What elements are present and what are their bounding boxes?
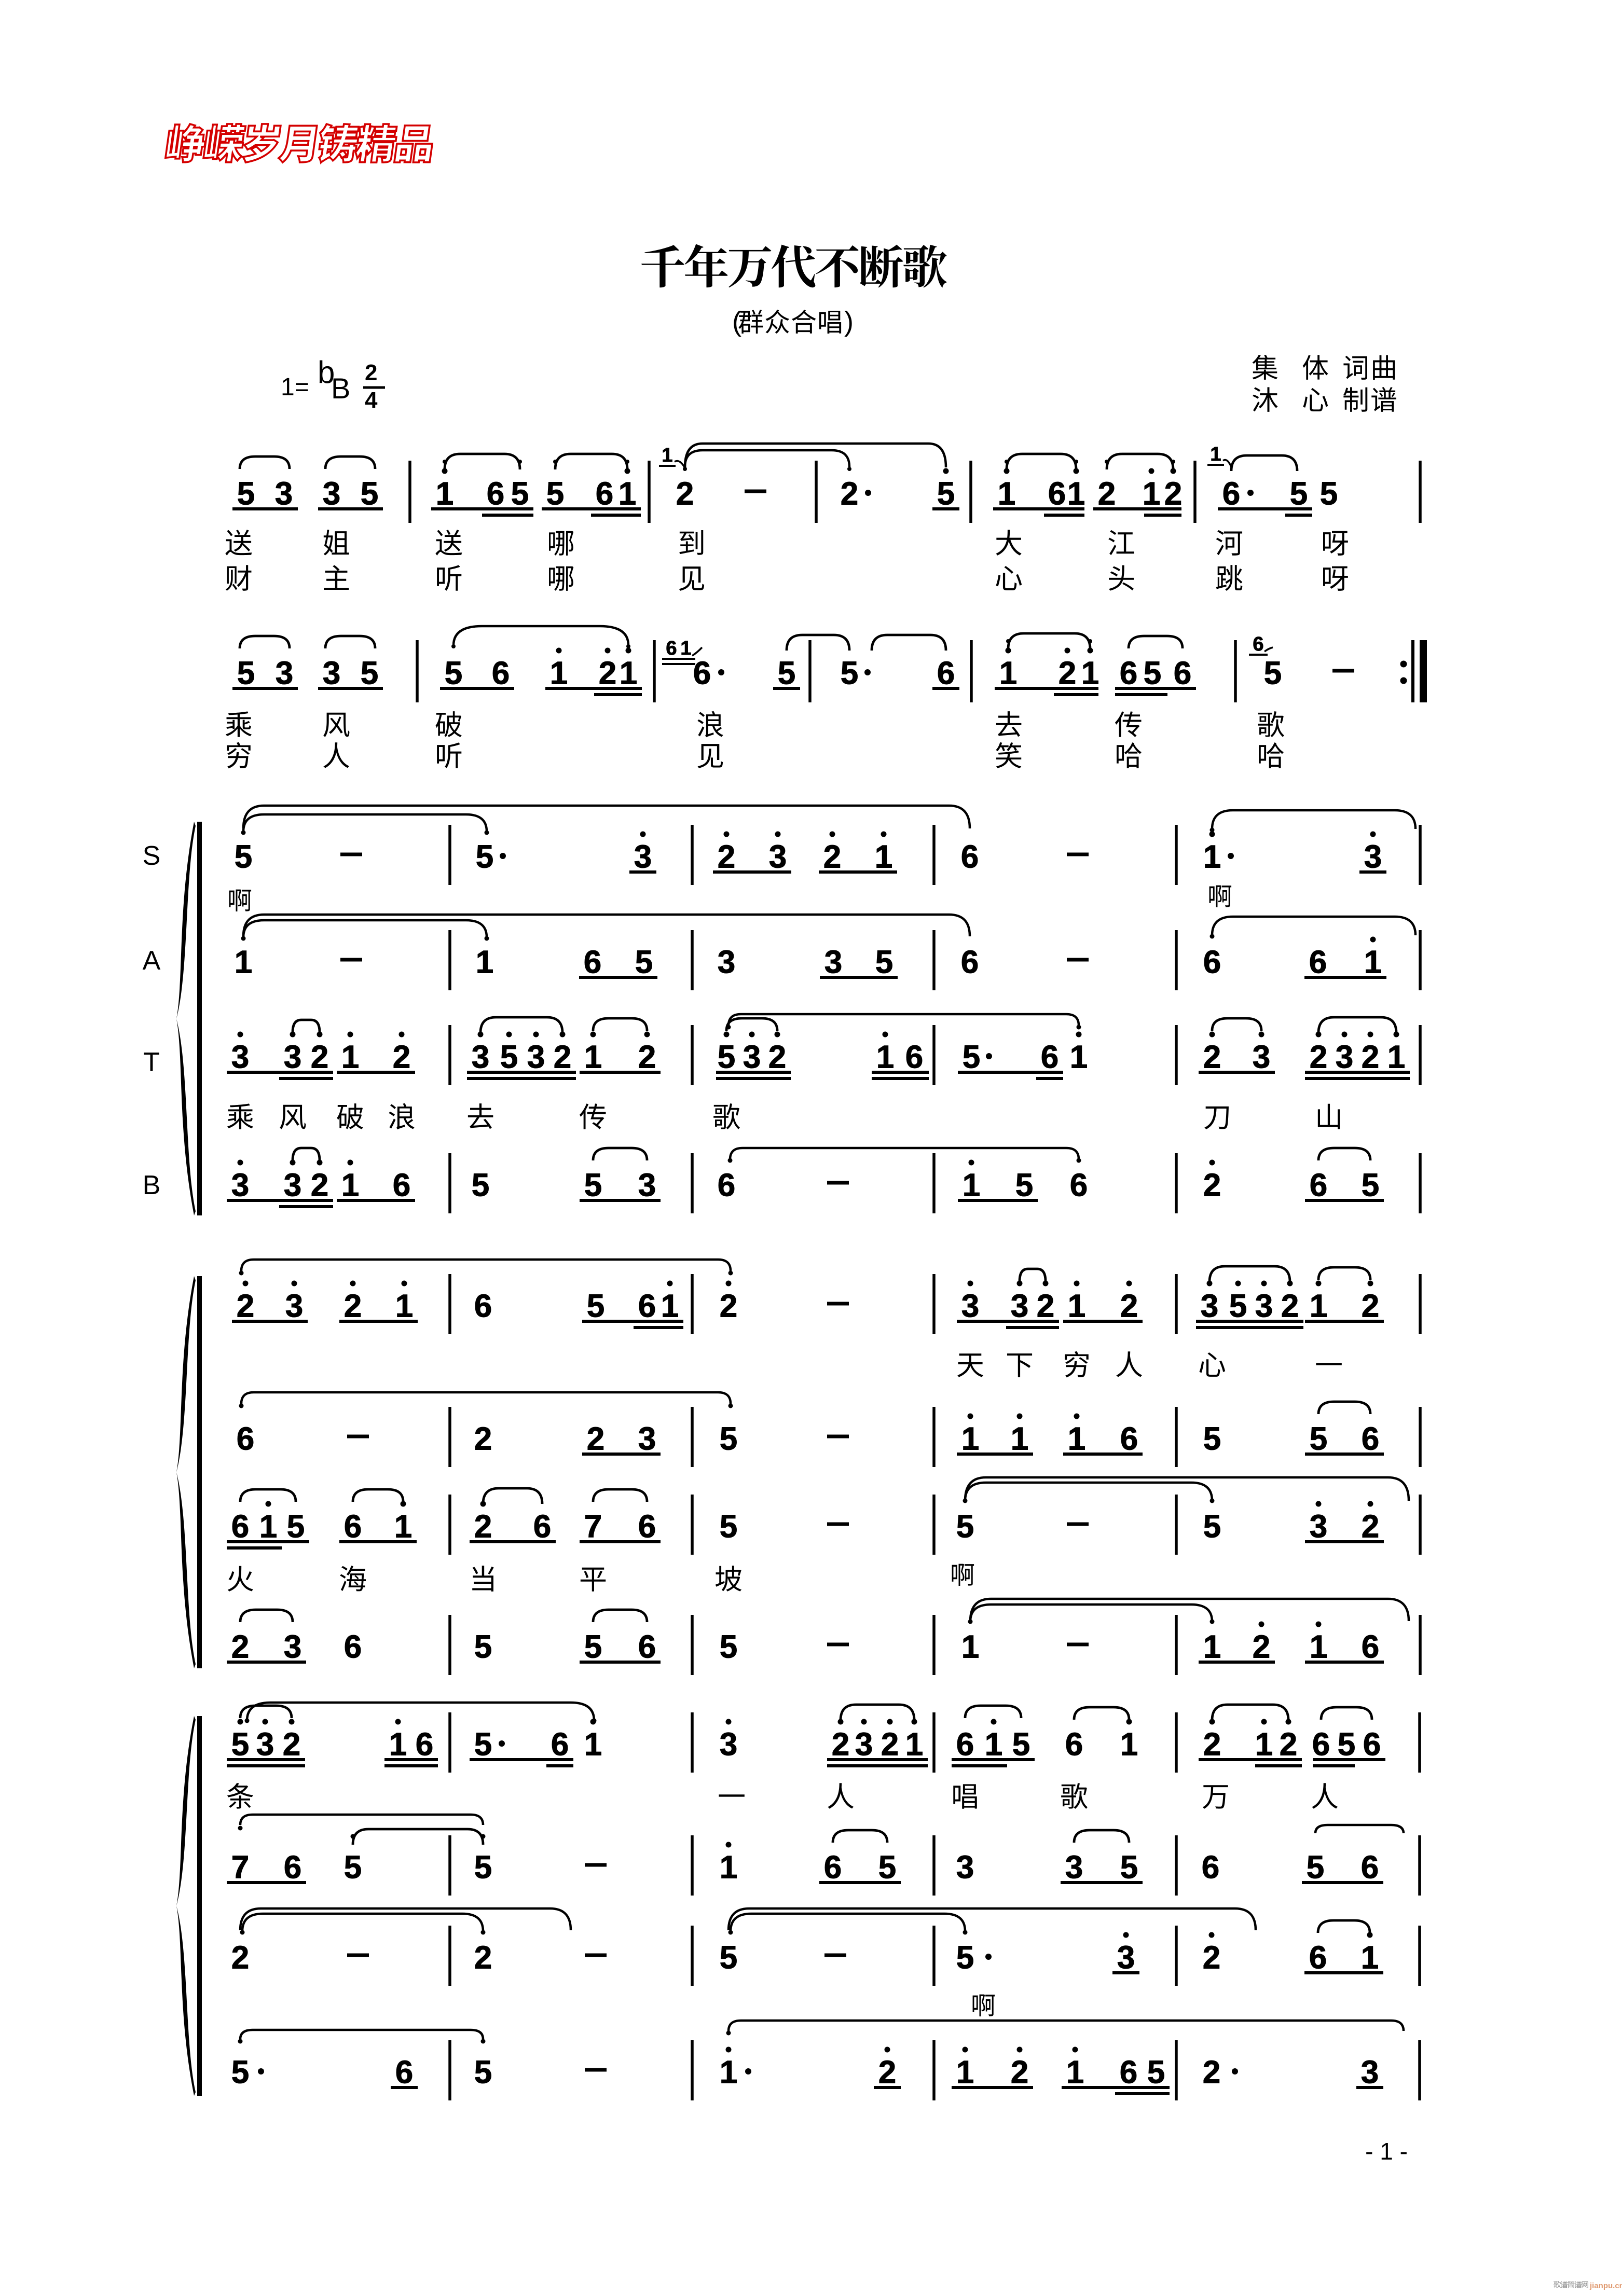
- svg-text:5: 5: [720, 1629, 737, 1665]
- svg-text:1: 1: [394, 1509, 412, 1545]
- svg-text:1: 1: [963, 1168, 980, 1204]
- svg-text:6: 6: [1120, 2055, 1137, 2091]
- svg-text:2: 2: [1281, 1289, 1299, 1324]
- svg-text:6: 6: [1362, 1421, 1379, 1457]
- svg-text:2: 2: [311, 1168, 328, 1204]
- svg-text:5: 5: [1320, 476, 1338, 512]
- svg-text:5: 5: [231, 2055, 249, 2091]
- svg-text:5: 5: [778, 656, 795, 691]
- svg-text:1: 1: [961, 1629, 979, 1665]
- svg-text:6: 6: [1070, 1168, 1088, 1204]
- svg-text:2: 2: [344, 1289, 362, 1324]
- svg-text:6: 6: [1361, 1850, 1379, 1886]
- svg-text:5: 5: [474, 1629, 492, 1665]
- svg-text:5: 5: [1203, 1509, 1221, 1545]
- svg-text:6: 6: [1222, 476, 1240, 512]
- svg-text:5: 5: [474, 1727, 492, 1763]
- svg-text:6: 6: [584, 945, 601, 980]
- svg-text:3: 3: [1011, 1289, 1028, 1324]
- svg-text:1: 1: [1203, 839, 1221, 875]
- svg-text:5: 5: [1307, 1850, 1324, 1886]
- svg-text:6: 6: [1312, 1727, 1330, 1763]
- svg-text:5: 5: [344, 1850, 362, 1886]
- svg-text:3: 3: [743, 1040, 761, 1075]
- svg-text:5: 5: [1012, 1727, 1030, 1763]
- svg-text:B: B: [331, 372, 350, 405]
- svg-text:5: 5: [956, 1509, 974, 1545]
- svg-text:2: 2: [1362, 1040, 1379, 1075]
- svg-text:6: 6: [961, 839, 979, 875]
- svg-text:5: 5: [474, 1850, 492, 1886]
- svg-text:2: 2: [718, 839, 735, 875]
- svg-text:6: 6: [1202, 1850, 1219, 1886]
- svg-text:5: 5: [546, 476, 564, 512]
- svg-text:6: 6: [393, 1168, 410, 1204]
- svg-text:5: 5: [878, 1850, 896, 1886]
- svg-text:6: 6: [638, 1289, 656, 1324]
- svg-text:6: 6: [693, 656, 711, 691]
- svg-text:1: 1: [476, 945, 493, 980]
- svg-text:1: 1: [1143, 476, 1160, 512]
- svg-text:1: 1: [584, 1727, 602, 1763]
- svg-text:1: 1: [259, 1509, 277, 1545]
- svg-text:1: 1: [1310, 1289, 1327, 1324]
- svg-text:1: 1: [1361, 1940, 1379, 1976]
- svg-text:2: 2: [1098, 476, 1116, 512]
- svg-text:2: 2: [1037, 1289, 1054, 1324]
- svg-text:6: 6: [533, 1509, 551, 1545]
- svg-text:3: 3: [1201, 1289, 1218, 1324]
- svg-text:5: 5: [361, 656, 378, 691]
- svg-text:3: 3: [284, 1040, 301, 1075]
- svg-text:2: 2: [365, 360, 377, 385]
- svg-text:7: 7: [231, 1850, 249, 1886]
- svg-text:5: 5: [720, 1509, 737, 1545]
- svg-text:6: 6: [487, 476, 504, 512]
- svg-text:5: 5: [1144, 656, 1161, 691]
- svg-text:2: 2: [237, 1289, 254, 1324]
- svg-text:5: 5: [1120, 1850, 1138, 1886]
- svg-text:6: 6: [1041, 1040, 1059, 1075]
- svg-text:7: 7: [584, 1509, 602, 1545]
- svg-text:3: 3: [284, 1629, 301, 1665]
- svg-text:1: 1: [956, 2055, 974, 2091]
- svg-text:6: 6: [1363, 1727, 1381, 1763]
- svg-text:1: 1: [550, 656, 568, 691]
- svg-text:5: 5: [956, 1940, 974, 1976]
- svg-text:1: 1: [876, 1040, 894, 1075]
- svg-text:3: 3: [855, 1727, 873, 1763]
- svg-text:5: 5: [237, 476, 255, 512]
- svg-text:3: 3: [1255, 1289, 1273, 1324]
- svg-text:2: 2: [474, 1509, 492, 1545]
- svg-text:1: 1: [1120, 1727, 1138, 1763]
- svg-text:6: 6: [1065, 1727, 1083, 1763]
- svg-text:6: 6: [1310, 1168, 1327, 1204]
- svg-text:3: 3: [824, 945, 842, 980]
- svg-text:5: 5: [1264, 656, 1282, 691]
- svg-text:6: 6: [416, 1727, 433, 1763]
- svg-text:1: 1: [875, 839, 892, 875]
- svg-text:3: 3: [638, 1421, 656, 1457]
- svg-text:2: 2: [638, 1040, 656, 1075]
- svg-text:2: 2: [841, 476, 858, 512]
- svg-text:6: 6: [666, 638, 677, 659]
- svg-text:5: 5: [937, 476, 955, 512]
- svg-text:3: 3: [1117, 1940, 1135, 1976]
- svg-text:3: 3: [256, 1727, 274, 1763]
- svg-text:6: 6: [824, 1850, 842, 1886]
- svg-text:3: 3: [1361, 2055, 1379, 2091]
- svg-text:6: 6: [1309, 1940, 1327, 1976]
- svg-text:3: 3: [285, 1289, 303, 1324]
- svg-text:1: 1: [235, 945, 252, 980]
- svg-text:1: 1: [1068, 1421, 1085, 1457]
- svg-text:5: 5: [500, 1040, 518, 1075]
- svg-text:3: 3: [527, 1040, 545, 1075]
- svg-text:(: (: [732, 306, 741, 337]
- svg-text:1: 1: [436, 476, 453, 512]
- svg-text:A: A: [143, 946, 161, 976]
- svg-text:2: 2: [1203, 1168, 1221, 1204]
- svg-text:1: 1: [1070, 1040, 1088, 1075]
- svg-text:5: 5: [584, 1168, 602, 1204]
- svg-text:T: T: [143, 1047, 160, 1077]
- svg-text:1: 1: [661, 1289, 679, 1324]
- svg-text:5: 5: [237, 656, 255, 691]
- svg-text:3: 3: [720, 1727, 737, 1763]
- svg-text:5: 5: [875, 945, 893, 980]
- svg-text:3: 3: [769, 839, 787, 875]
- svg-text:6: 6: [237, 1421, 254, 1457]
- svg-text:6: 6: [1203, 945, 1221, 980]
- svg-text:1: 1: [341, 1040, 359, 1075]
- svg-text:2: 2: [1164, 476, 1182, 512]
- svg-text:5: 5: [1203, 1421, 1221, 1457]
- svg-text:2: 2: [1253, 1629, 1270, 1665]
- svg-text:1: 1: [1255, 1727, 1273, 1763]
- svg-text:2: 2: [1280, 1727, 1297, 1763]
- svg-text:2: 2: [1310, 1040, 1327, 1075]
- svg-text:1: 1: [1081, 656, 1099, 691]
- svg-text:2: 2: [1011, 2055, 1028, 2091]
- svg-text:5: 5: [587, 1289, 604, 1324]
- svg-text:1: 1: [395, 1289, 413, 1324]
- svg-text:6: 6: [596, 476, 613, 512]
- svg-text:6: 6: [937, 656, 955, 691]
- svg-text:2: 2: [832, 1727, 849, 1763]
- svg-text:6: 6: [474, 1289, 492, 1324]
- svg-text:1: 1: [584, 1040, 602, 1075]
- svg-text:B: B: [143, 1170, 161, 1200]
- svg-text:3: 3: [1253, 1040, 1270, 1075]
- svg-text:5: 5: [720, 1421, 737, 1457]
- svg-text:5: 5: [1338, 1727, 1355, 1763]
- svg-text:1: 1: [905, 1727, 923, 1763]
- svg-text:6: 6: [1253, 633, 1263, 655]
- svg-text:6: 6: [395, 2055, 413, 2091]
- svg-text:1: 1: [1310, 1629, 1327, 1665]
- svg-text:3: 3: [961, 1289, 979, 1324]
- svg-text:6: 6: [284, 1850, 301, 1886]
- svg-text:2: 2: [1203, 1940, 1220, 1976]
- svg-text:1: 1: [1067, 476, 1085, 512]
- svg-text:5: 5: [361, 476, 378, 512]
- svg-text:1: 1: [1066, 2055, 1084, 2091]
- svg-text:6: 6: [718, 1168, 735, 1204]
- svg-text:5: 5: [511, 476, 529, 512]
- svg-text:2: 2: [231, 1629, 249, 1665]
- svg-text:3: 3: [472, 1040, 489, 1075]
- svg-text:3: 3: [1336, 1040, 1353, 1075]
- svg-text:2: 2: [231, 1940, 249, 1976]
- svg-text:5: 5: [1229, 1289, 1247, 1324]
- svg-text:3: 3: [275, 476, 293, 512]
- svg-text:2: 2: [823, 839, 841, 875]
- svg-text:3: 3: [1310, 1509, 1327, 1545]
- svg-text:5: 5: [474, 2055, 492, 2091]
- svg-text:3: 3: [1065, 1850, 1083, 1886]
- svg-text:2: 2: [1362, 1289, 1379, 1324]
- svg-text:2: 2: [599, 656, 616, 691]
- svg-text:5: 5: [445, 656, 462, 691]
- svg-text:2: 2: [554, 1040, 571, 1075]
- svg-text:- 1 -: - 1 -: [1365, 2138, 1408, 2165]
- svg-text:1: 1: [1387, 1040, 1405, 1075]
- svg-text:5: 5: [1362, 1168, 1379, 1204]
- svg-text:2: 2: [474, 1940, 492, 1976]
- svg-text:5: 5: [1015, 1168, 1033, 1204]
- svg-text:2: 2: [1120, 1289, 1138, 1324]
- svg-text:5: 5: [1310, 1421, 1327, 1457]
- svg-text:1: 1: [1011, 1421, 1028, 1457]
- svg-text:3: 3: [284, 1168, 301, 1204]
- svg-text:5: 5: [635, 945, 653, 980]
- svg-text:1: 1: [620, 656, 637, 691]
- svg-text:3: 3: [1364, 839, 1382, 875]
- svg-text:1: 1: [961, 1421, 979, 1457]
- svg-text:6: 6: [638, 1629, 656, 1665]
- svg-text:3: 3: [323, 476, 340, 512]
- svg-text:1: 1: [1364, 945, 1382, 980]
- svg-text:3: 3: [956, 1850, 974, 1886]
- svg-text:5: 5: [472, 1168, 489, 1204]
- svg-text:6: 6: [1174, 656, 1191, 691]
- svg-text:1: 1: [1210, 444, 1221, 465]
- svg-text:1: 1: [1203, 1629, 1221, 1665]
- svg-text:2: 2: [311, 1040, 328, 1075]
- svg-text:1: 1: [680, 638, 691, 659]
- svg-text:jianpu.cn: jianpu.cn: [1589, 2281, 1622, 2290]
- svg-text:1: 1: [720, 2055, 737, 2091]
- svg-text:6: 6: [1309, 945, 1327, 980]
- svg-text:6: 6: [1048, 476, 1066, 512]
- svg-text:5: 5: [235, 839, 252, 875]
- svg-text:2: 2: [1203, 2055, 1220, 2091]
- svg-text:5: 5: [720, 1940, 737, 1976]
- svg-text:1: 1: [998, 476, 1015, 512]
- svg-text:2: 2: [1059, 656, 1076, 691]
- svg-text:2: 2: [878, 2055, 896, 2091]
- svg-text:5: 5: [584, 1629, 602, 1665]
- svg-text:6: 6: [1120, 656, 1137, 691]
- svg-text:S: S: [143, 841, 161, 871]
- svg-text:6: 6: [551, 1727, 569, 1763]
- svg-text:): ): [844, 306, 854, 337]
- svg-text:2: 2: [474, 1421, 492, 1457]
- svg-text:3: 3: [323, 656, 340, 691]
- svg-text:2: 2: [283, 1727, 300, 1763]
- svg-text:3: 3: [638, 1168, 656, 1204]
- svg-text:3: 3: [634, 839, 652, 875]
- svg-text:1: 1: [1068, 1289, 1085, 1324]
- svg-text:5: 5: [287, 1509, 305, 1545]
- svg-text:2: 2: [881, 1727, 899, 1763]
- svg-text:2: 2: [1362, 1509, 1379, 1545]
- svg-text:1: 1: [720, 1850, 737, 1886]
- svg-text:6: 6: [1362, 1629, 1379, 1665]
- svg-text:3: 3: [231, 1040, 249, 1075]
- svg-text:5: 5: [1290, 476, 1308, 512]
- svg-text:6: 6: [344, 1629, 362, 1665]
- svg-text:5: 5: [963, 1040, 980, 1075]
- svg-text:2: 2: [676, 476, 694, 512]
- svg-text:1: 1: [999, 656, 1017, 691]
- svg-text:1: 1: [662, 445, 672, 466]
- svg-text:1: 1: [341, 1168, 359, 1204]
- svg-text:4: 4: [365, 388, 378, 413]
- svg-text:1: 1: [618, 476, 636, 512]
- svg-text:5: 5: [841, 656, 858, 691]
- svg-text:2: 2: [393, 1040, 410, 1075]
- svg-text:6: 6: [638, 1509, 656, 1545]
- svg-text:5: 5: [718, 1040, 735, 1075]
- svg-text:3: 3: [718, 945, 735, 980]
- svg-text:2: 2: [587, 1421, 604, 1457]
- svg-text:3: 3: [231, 1168, 249, 1204]
- svg-text:6: 6: [492, 656, 510, 691]
- svg-text:6: 6: [961, 945, 979, 980]
- svg-text:2: 2: [768, 1040, 786, 1075]
- svg-text:5: 5: [231, 1727, 249, 1763]
- svg-text:6: 6: [231, 1509, 249, 1545]
- svg-text:1: 1: [389, 1727, 407, 1763]
- svg-text:3: 3: [276, 656, 293, 691]
- svg-text:6: 6: [905, 1040, 923, 1075]
- svg-text:6: 6: [1120, 1421, 1138, 1457]
- svg-text:5: 5: [476, 839, 493, 875]
- svg-text:6: 6: [956, 1727, 974, 1763]
- svg-text:2: 2: [720, 1289, 737, 1324]
- svg-text:6: 6: [344, 1509, 362, 1545]
- svg-text:1=: 1=: [281, 374, 309, 401]
- svg-text:1: 1: [985, 1727, 1002, 1763]
- svg-text:2: 2: [1203, 1040, 1221, 1075]
- svg-text:5: 5: [1147, 2055, 1165, 2091]
- svg-text:2: 2: [1203, 1727, 1221, 1763]
